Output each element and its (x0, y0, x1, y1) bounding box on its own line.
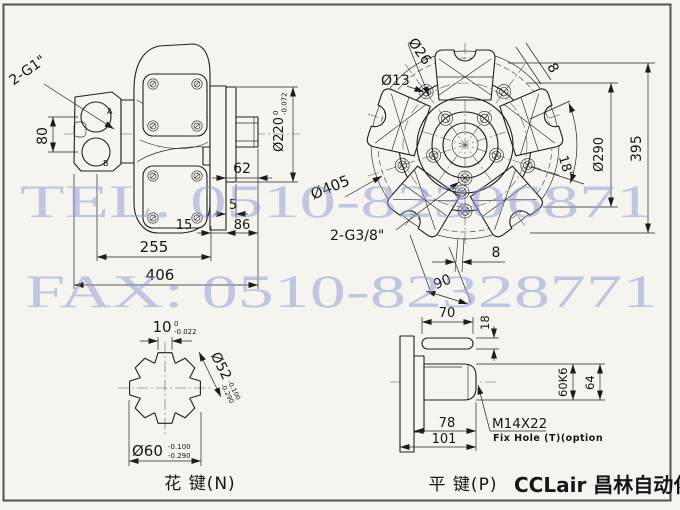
key-flange-hub (414, 356, 424, 432)
dim-d13-label: Ø13 (381, 73, 410, 89)
dim-220-tol-lower: -0.072 (281, 92, 289, 115)
dim-d290-label: Ø290 (592, 137, 607, 172)
dim-10-label: 10 (152, 318, 171, 336)
dim-64-label: 64 (583, 375, 597, 390)
watermark-fax: FAX: 0510-82328771 (25, 266, 658, 318)
port-b-label: B (103, 159, 109, 168)
dim-395-label: 395 (629, 135, 645, 162)
drawing-sheet: A B 80 2-G1" Ø220 0 (0, 0, 680, 510)
thread-callout: M14X22 (492, 416, 547, 432)
engineering-drawing: A B 80 2-G1" Ø220 0 (0, 0, 680, 510)
dim-d60-tol-lower: -0.290 (168, 452, 191, 460)
dim-10-tol-upper: 0 (174, 320, 178, 328)
key-flange-plate (400, 336, 414, 452)
dim-101-label: 101 (432, 432, 457, 447)
key-bar (422, 338, 473, 349)
dim-220-label: Ø220 (272, 117, 287, 152)
dim-60k6-label: 60K6 (556, 368, 570, 398)
spline-caption: 花 键(N) (164, 474, 235, 494)
port-g38-label: 2-G3/8" (330, 228, 384, 244)
key-caption: 平 键(P) (429, 475, 498, 495)
dim-255-label: 255 (140, 238, 169, 256)
port-a-label: A (107, 107, 113, 116)
output-shaft-side (236, 117, 258, 147)
dim-d60-label: Ø60 (132, 442, 163, 460)
dim-d60-tol-upper: -0.100 (168, 443, 191, 451)
fix-hole-note: Fix Hole (T)(option (493, 433, 603, 444)
watermark-tel: TEL. 0510-82306871 (20, 176, 652, 228)
dim-80-label: 80 (35, 127, 51, 145)
dim-62-label: 62 (233, 161, 251, 177)
dim-10-tol-lower: -0.022 (174, 328, 197, 336)
dim-220-tol-upper: 0 (272, 111, 280, 115)
dim-78-label: 78 (439, 416, 456, 431)
dim-8-bottom-label: 8 (492, 245, 501, 261)
brand-logo: CCLair 昌林自动化 (514, 473, 680, 497)
